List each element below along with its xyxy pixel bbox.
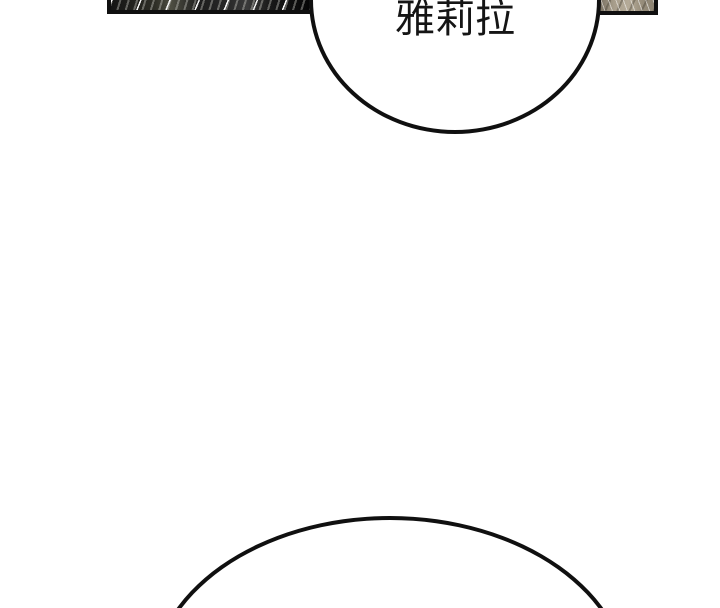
speech-bubble-top: 雅莉拉 [309, 0, 601, 134]
comic-panel-fragment-left [107, 0, 311, 14]
comic-panel-fragment-right [597, 0, 658, 15]
speech-bubble-top-text: 雅莉拉 [313, 0, 597, 41]
speech-bubble-bottom [150, 516, 630, 608]
comic-page: 雅莉拉 [0, 0, 720, 608]
